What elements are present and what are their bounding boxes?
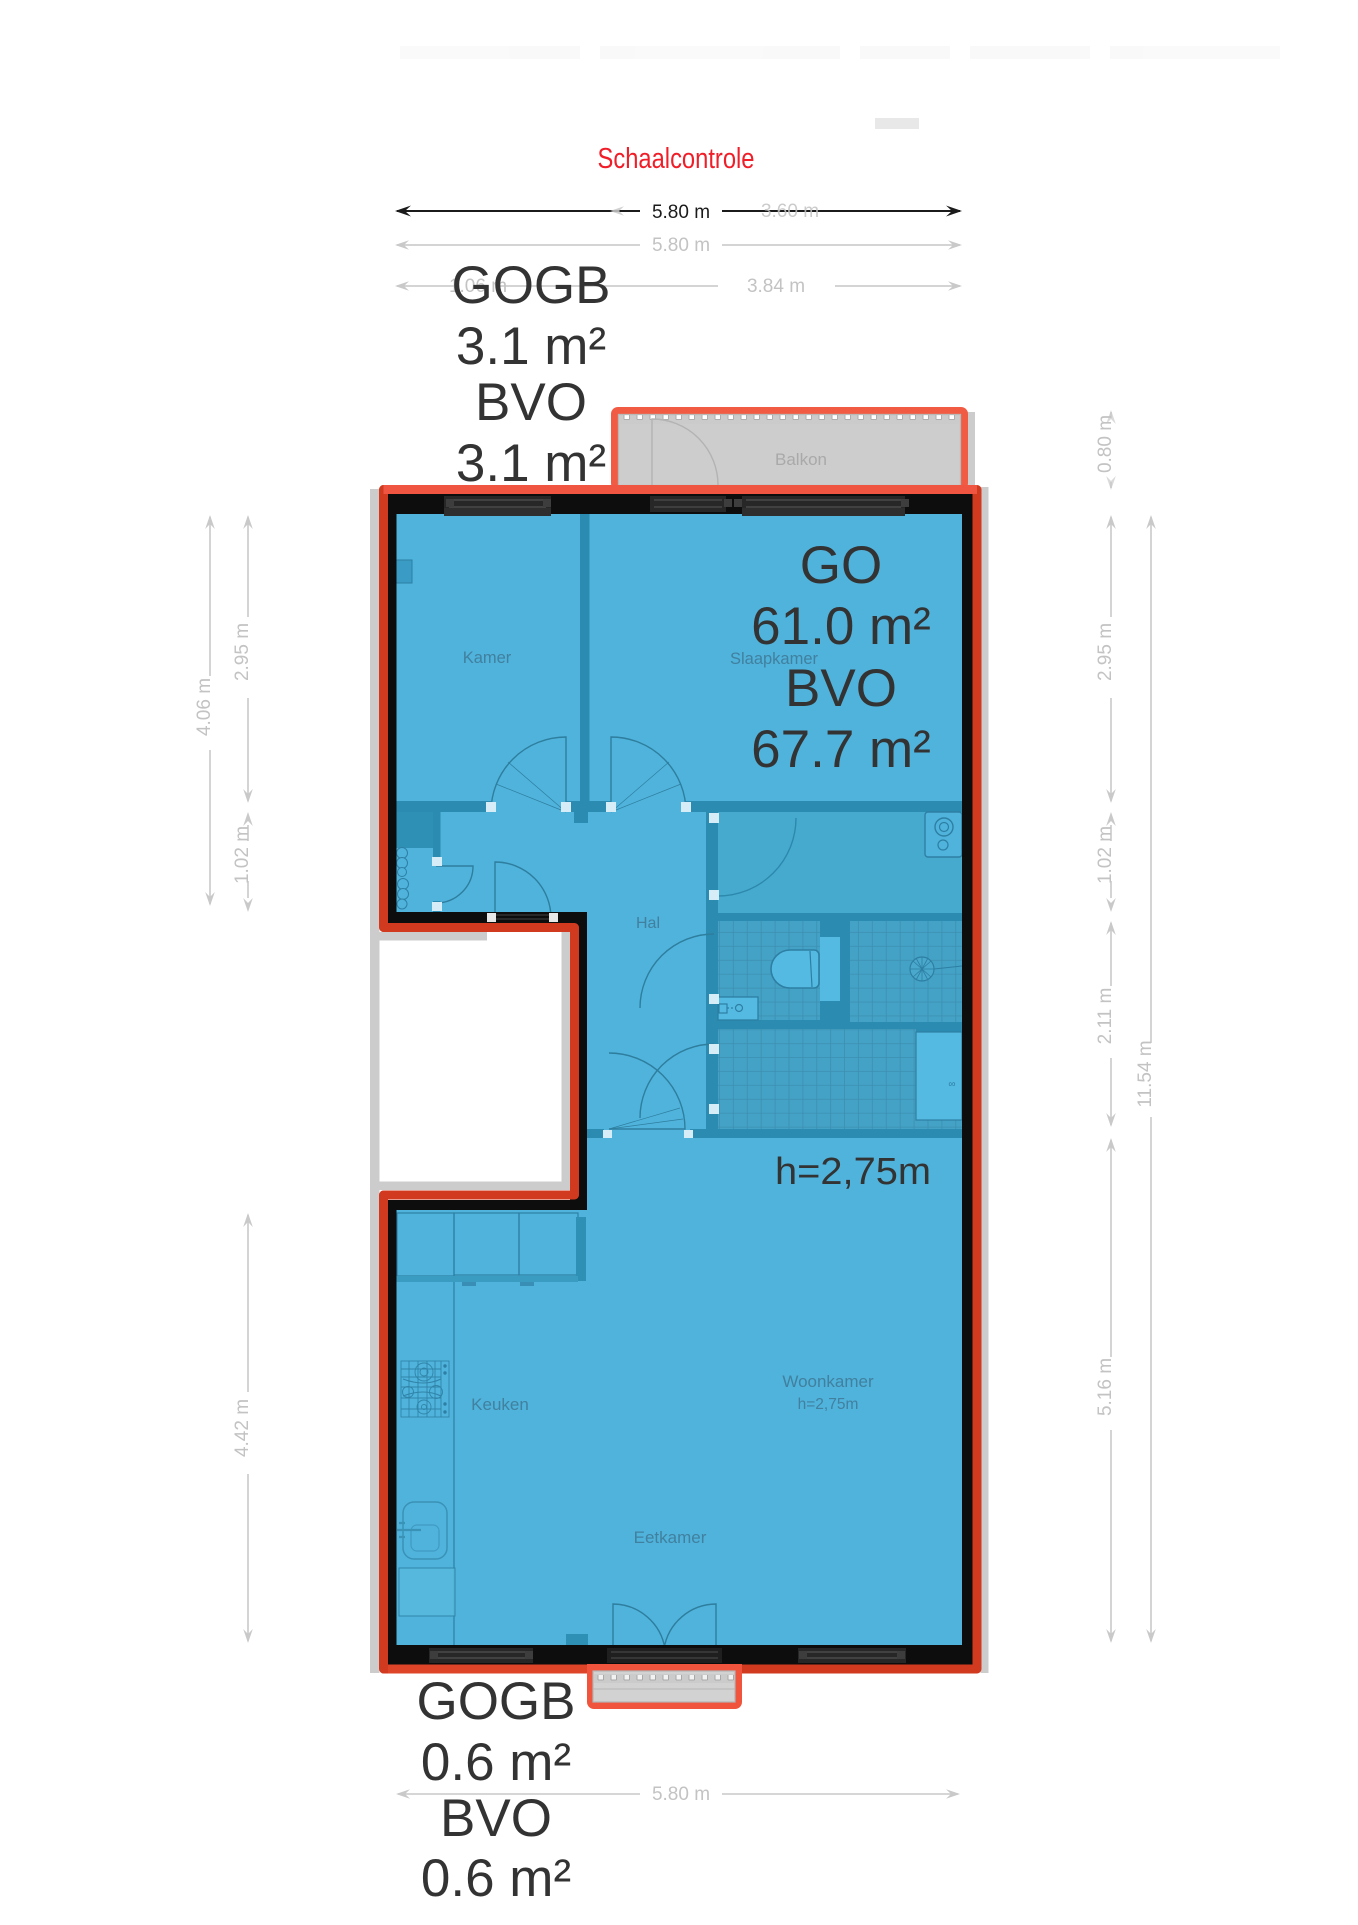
svg-text:3.1 m²: 3.1 m² <box>456 317 606 376</box>
svg-text:Balkon: Balkon <box>775 450 827 469</box>
svg-text:2.95 m: 2.95 m <box>232 623 253 681</box>
svg-text:Woonkamer: Woonkamer <box>782 1372 874 1391</box>
svg-text:Schaalcontrole: Schaalcontrole <box>598 143 755 175</box>
svg-text:GO: GO <box>800 536 882 595</box>
svg-text:Hal: Hal <box>636 915 660 932</box>
svg-text:3.60 m: 3.60 m <box>761 201 819 222</box>
svg-text:5.80 m: 5.80 m <box>652 1784 710 1805</box>
svg-text:h=2,75m: h=2,75m <box>798 1396 859 1413</box>
svg-text:Kamer: Kamer <box>463 649 512 667</box>
svg-text:Keuken: Keuken <box>471 1395 529 1414</box>
svg-text:BVO: BVO <box>785 659 897 718</box>
svg-text:4.06 m: 4.06 m <box>194 678 215 736</box>
svg-text:0.80 m: 0.80 m <box>1095 415 1116 473</box>
svg-text:BVO: BVO <box>475 373 587 432</box>
svg-text:h=2,75m: h=2,75m <box>775 1151 931 1193</box>
svg-text:1.02 m: 1.02 m <box>1095 826 1116 884</box>
svg-text:5.80 m: 5.80 m <box>652 202 710 223</box>
svg-text:3.84 m: 3.84 m <box>747 276 805 297</box>
svg-text:∞: ∞ <box>948 1079 955 1090</box>
svg-text:61.0 m²: 61.0 m² <box>751 597 931 656</box>
svg-text:5.80 m: 5.80 m <box>652 235 710 256</box>
svg-text:BVO: BVO <box>440 1789 552 1848</box>
svg-text:GOGB: GOGB <box>451 256 610 315</box>
svg-text:Eetkamer: Eetkamer <box>634 1528 707 1547</box>
svg-text:GOGB: GOGB <box>416 1672 575 1731</box>
svg-text:0.6 m²: 0.6 m² <box>421 1849 571 1908</box>
svg-text:2.95 m: 2.95 m <box>1095 623 1116 681</box>
svg-text:5.16 m: 5.16 m <box>1095 1358 1116 1416</box>
svg-text:1.02 m: 1.02 m <box>232 826 253 884</box>
svg-text:2.11 m: 2.11 m <box>1095 988 1116 1045</box>
svg-text:11.54 m: 11.54 m <box>1135 1040 1156 1107</box>
svg-text:3.1 m²: 3.1 m² <box>456 434 606 493</box>
svg-text:67.7 m²: 67.7 m² <box>751 720 931 779</box>
svg-text:4.42 m: 4.42 m <box>232 1399 253 1457</box>
svg-text:0.6 m²: 0.6 m² <box>421 1733 571 1792</box>
